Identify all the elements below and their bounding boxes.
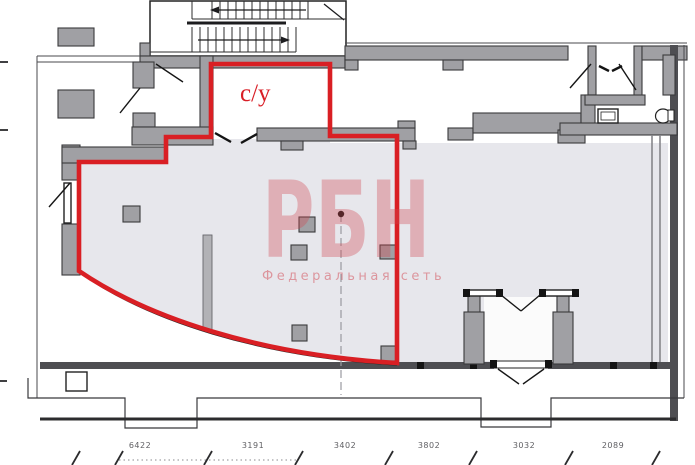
plinth-outline — [28, 378, 684, 428]
vestibule-floor — [484, 297, 556, 361]
staircase — [150, 1, 346, 56]
dimension-label: 3802 — [418, 441, 440, 450]
dimension-label: 3032 — [513, 441, 535, 450]
dimension-label: 2089 — [602, 441, 624, 450]
margin-ticks — [0, 62, 8, 381]
column-white — [66, 372, 87, 391]
dimension-label: 6422 — [129, 441, 151, 450]
floor-plan: с/у РБН Федеральная сеть 6422 3191 3402 … — [0, 0, 695, 465]
dimension-label: 3191 — [242, 441, 264, 450]
axis-node — [338, 211, 344, 217]
floor-plan-drawing — [0, 0, 695, 465]
partition-stub — [203, 235, 212, 330]
dimension-ticks — [72, 451, 660, 465]
dimension-label: 3402 — [334, 441, 356, 450]
floor-shade — [80, 139, 668, 362]
bathroom-fixtures — [598, 109, 674, 123]
